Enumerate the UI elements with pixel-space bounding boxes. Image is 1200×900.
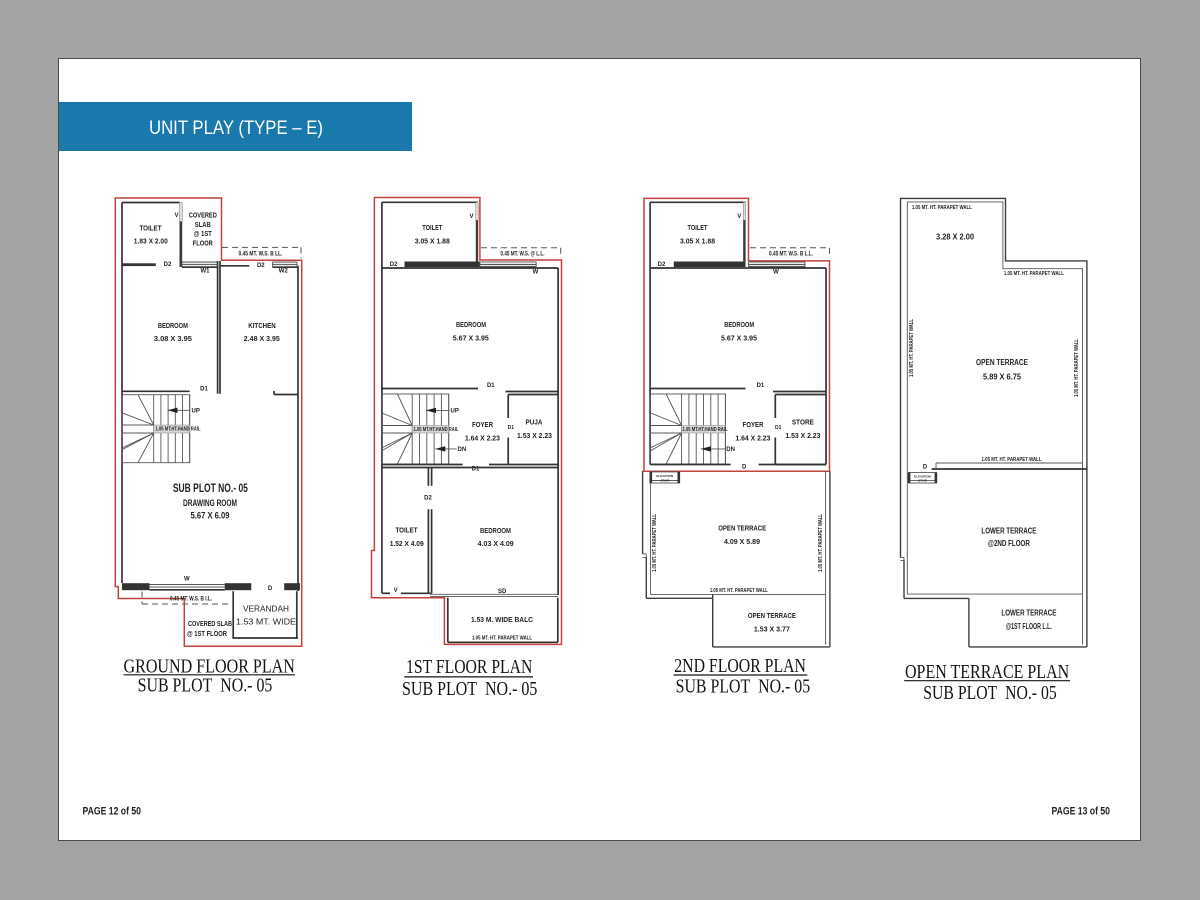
svg-text:TOILET: TOILET xyxy=(140,226,163,233)
svg-text:3.28 X 2.00: 3.28 X 2.00 xyxy=(936,233,975,242)
svg-text:D1: D1 xyxy=(487,383,495,389)
svg-text:V: V xyxy=(469,214,473,220)
svg-text:PUJA: PUJA xyxy=(526,417,543,426)
svg-text:1.05 MT.HT.HAND RAIL: 1.05 MT.HT.HAND RAIL xyxy=(156,427,201,433)
svg-text:OPEN TERRACE: OPEN TERRACE xyxy=(748,611,796,620)
svg-text:UNIT PLAY (TYPE – E): UNIT PLAY (TYPE – E) xyxy=(149,118,323,139)
svg-text:BEDROOM: BEDROOM xyxy=(724,322,754,329)
svg-text:@ 1ST FLOOR: @ 1ST FLOOR xyxy=(187,631,227,638)
svg-text:1.05 MT. HT. PARAPET WALL: 1.05 MT. HT. PARAPET WALL xyxy=(818,514,824,572)
svg-text:0.45 MT. W.S. B I.L.: 0.45 MT. W.S. B I.L. xyxy=(170,597,212,603)
svg-text:4.03 X 4.09: 4.03 X 4.09 xyxy=(478,541,514,548)
svg-text:W: W xyxy=(533,270,539,276)
svg-text:V: V xyxy=(737,214,741,220)
svg-text:1.64 X 2.23: 1.64 X 2.23 xyxy=(735,433,770,442)
svg-text:TOILET: TOILET xyxy=(422,225,443,232)
svg-text:BEDROOM: BEDROOM xyxy=(480,528,511,535)
svg-text:SD: SD xyxy=(498,589,507,595)
svg-text:2ND FLOOR PLAN: 2ND FLOOR PLAN xyxy=(674,655,806,677)
svg-text:0.45 MT. W.S. @ L.L.: 0.45 MT. W.S. @ L.L. xyxy=(501,252,545,258)
svg-text:KITCHEN: KITCHEN xyxy=(248,323,276,330)
svg-text:W1: W1 xyxy=(201,268,211,274)
svg-text:1.05 MT. HT. PARAPET WALL: 1.05 MT. HT. PARAPET WALL xyxy=(472,635,532,641)
svg-text:COVERED SLAB: COVERED SLAB xyxy=(188,621,232,628)
svg-text:1.53 X 3.77: 1.53 X 3.77 xyxy=(754,624,790,633)
svg-text:5.67 X 6.09: 5.67 X 6.09 xyxy=(191,511,230,521)
svg-text:V: V xyxy=(174,213,178,219)
svg-text:D1: D1 xyxy=(775,425,782,431)
svg-text:D2: D2 xyxy=(257,263,265,269)
svg-text:SUB PLOT NO.- 05: SUB PLOT NO.- 05 xyxy=(173,483,248,495)
svg-text:OPEN TERRACE: OPEN TERRACE xyxy=(976,358,1029,367)
svg-text:W: W xyxy=(184,577,190,583)
svg-text:PAGE 12 of 50: PAGE 12 of 50 xyxy=(83,806,142,818)
svg-text:COVERED: COVERED xyxy=(189,213,217,220)
svg-text:1.53 MT. WIDE: 1.53 MT. WIDE xyxy=(236,617,296,627)
svg-text:5.89 X 6.75: 5.89 X 6.75 xyxy=(983,372,1022,381)
svg-text:1.05 MT. HT. PARAPET WALL: 1.05 MT. HT. PARAPET WALL xyxy=(1074,339,1080,397)
svg-text:FOYER: FOYER xyxy=(472,420,493,429)
svg-text:TOILET: TOILET xyxy=(688,225,709,232)
svg-text:1.83 X 2.00: 1.83 X 2.00 xyxy=(134,239,168,246)
svg-text:0.45 MT. W.S. B L.L.: 0.45 MT. W.S. B L.L. xyxy=(769,252,813,258)
svg-text:@2ND FLOOR: @2ND FLOOR xyxy=(988,539,1030,548)
svg-text:5.67 X 3.95: 5.67 X 3.95 xyxy=(453,336,489,343)
svg-text:5.67 X 3.95: 5.67 X 3.95 xyxy=(721,336,757,343)
svg-text:1.05 MT. HT. PARAPET WALL: 1.05 MT. HT. PARAPET WALL xyxy=(710,588,768,594)
svg-text:0.45 MT. W.S. B LL.: 0.45 MT. W.S. B LL. xyxy=(239,252,283,258)
svg-text:D2: D2 xyxy=(390,262,398,268)
svg-text:1.05 MT. HT. PARAPET WALL: 1.05 MT. HT. PARAPET WALL xyxy=(1004,271,1064,277)
svg-text:@1ST FLOOR L.L.: @1ST FLOOR L.L. xyxy=(1006,622,1052,631)
svg-text:D1: D1 xyxy=(508,425,515,431)
svg-text:SUB PLOT NO.- 05: SUB PLOT NO.- 05 xyxy=(676,675,811,697)
svg-text:W2: W2 xyxy=(279,268,289,274)
svg-text:SUB PLOT NO.- 05: SUB PLOT NO.- 05 xyxy=(138,675,273,697)
svg-text:3.05 X 1.88: 3.05 X 1.88 xyxy=(415,238,450,245)
svg-text:D: D xyxy=(742,464,747,470)
svg-text:OPEN TERRACE PLAN: OPEN TERRACE PLAN xyxy=(905,661,1069,683)
svg-text:UP: UP xyxy=(192,409,200,415)
svg-text:SUB PLOT NO.- 05: SUB PLOT NO.- 05 xyxy=(923,682,1056,704)
svg-text:SLAB: SLAB xyxy=(195,222,211,229)
svg-text:3.05 X 1.88: 3.05 X 1.88 xyxy=(680,238,715,245)
svg-text:SUB PLOT NO.- 05: SUB PLOT NO.- 05 xyxy=(402,678,537,700)
svg-text:D2: D2 xyxy=(424,496,432,502)
svg-text:1.05 MT.HT.HAND RAIL: 1.05 MT.HT.HAND RAIL xyxy=(414,427,459,433)
svg-text:LOWER TERRACE: LOWER TERRACE xyxy=(981,526,1037,535)
svg-text:D: D xyxy=(923,465,928,471)
svg-text:UP: UP xyxy=(451,409,459,415)
svg-text:DRAWING ROOM: DRAWING ROOM xyxy=(183,498,237,508)
svg-text:BEDROOM: BEDROOM xyxy=(456,322,486,329)
svg-text:1.05 MT. HT. PARAPET WALL: 1.05 MT. HT. PARAPET WALL xyxy=(982,457,1042,463)
svg-text:DN: DN xyxy=(726,447,735,453)
svg-text:1ST FLOOR PLAN: 1ST FLOOR PLAN xyxy=(406,656,532,678)
svg-text:3.08 X 3.95: 3.08 X 3.95 xyxy=(154,336,192,343)
svg-text:@ 1ST: @ 1ST xyxy=(194,231,213,238)
svg-text:VERANDAH: VERANDAH xyxy=(243,604,289,614)
svg-text:W: W xyxy=(773,270,779,276)
svg-text:D1: D1 xyxy=(200,387,208,393)
svg-text:V: V xyxy=(394,588,398,594)
svg-text:1.05 MT. HT. PARAPET WALL: 1.05 MT. HT. PARAPET WALL xyxy=(912,205,972,211)
svg-text:D: D xyxy=(268,586,273,592)
svg-text:FOYER: FOYER xyxy=(743,420,764,429)
svg-text:OPEN TERRACE: OPEN TERRACE xyxy=(718,524,766,533)
svg-text:STORE: STORE xyxy=(792,417,814,426)
svg-text:1.53 M. WIDE BALC: 1.53 M. WIDE BALC xyxy=(471,615,534,624)
svg-text:STAIR: STAIR xyxy=(918,479,928,483)
svg-text:DN: DN xyxy=(458,447,467,453)
svg-text:2.48 X 3.95: 2.48 X 3.95 xyxy=(244,336,280,343)
svg-text:TOILET: TOILET xyxy=(396,528,419,535)
svg-text:PAGE 13 of 50: PAGE 13 of 50 xyxy=(1052,806,1111,818)
svg-text:1.05 MT. HT. PARAPET WALL: 1.05 MT. HT. PARAPET WALL xyxy=(909,319,915,377)
svg-text:D2: D2 xyxy=(164,262,172,268)
svg-text:1.05 MT. HT. PARAPET WALL: 1.05 MT. HT. PARAPET WALL xyxy=(652,514,658,572)
svg-text:1.05 MT.HT.HAND RAIL: 1.05 MT.HT.HAND RAIL xyxy=(683,427,728,433)
svg-text:BEDROOM: BEDROOM xyxy=(158,323,188,330)
svg-text:1.53 X 2.23: 1.53 X 2.23 xyxy=(785,431,820,440)
svg-text:D1: D1 xyxy=(757,383,765,389)
svg-text:FLOOR: FLOOR xyxy=(193,240,213,247)
svg-text:1.64 X 2.23: 1.64 X 2.23 xyxy=(465,433,500,442)
svg-text:1.53 X 2.23: 1.53 X 2.23 xyxy=(517,431,552,440)
svg-text:1.52 X 4.09: 1.52 X 4.09 xyxy=(390,541,424,548)
svg-text:D2: D2 xyxy=(658,262,666,268)
svg-text:STAIR: STAIR xyxy=(660,478,670,482)
svg-text:LOWER TERRACE: LOWER TERRACE xyxy=(1001,609,1057,618)
svg-text:4.09 X 5.89: 4.09 X 5.89 xyxy=(724,537,760,546)
